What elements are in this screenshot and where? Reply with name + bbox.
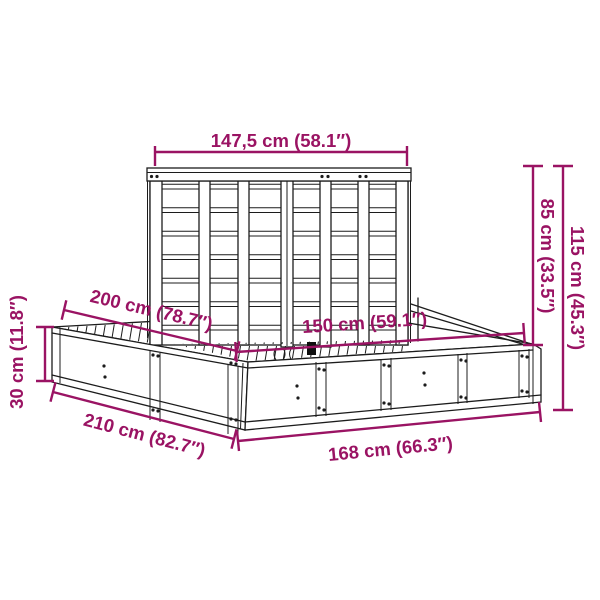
dimension-headboard-width: 147,5 cm (58.1″) [155,130,407,166]
dimension-diagram: 147,5 cm (58.1″) 85 cm (33.5″) 115 cm (4… [0,0,600,600]
total-height-label: 115 cm (45.3″) [567,226,588,350]
dimension-frame-height: 30 cm (11.8″) [6,295,54,409]
headboard-width-label: 147,5 cm (58.1″) [211,130,352,151]
headboard-top-rail [147,168,411,181]
dimension-height-above-frame: 85 cm (33.5″) [523,166,558,345]
frame-height-label: 30 cm (11.8″) [6,295,27,409]
height-above-frame-label: 85 cm (33.5″) [537,199,558,314]
outer-width-label: 168 cm (66.3″) [327,432,454,465]
center-support [307,342,316,355]
diagram-canvas: 147,5 cm (58.1″) 85 cm (33.5″) 115 cm (4… [0,0,600,600]
